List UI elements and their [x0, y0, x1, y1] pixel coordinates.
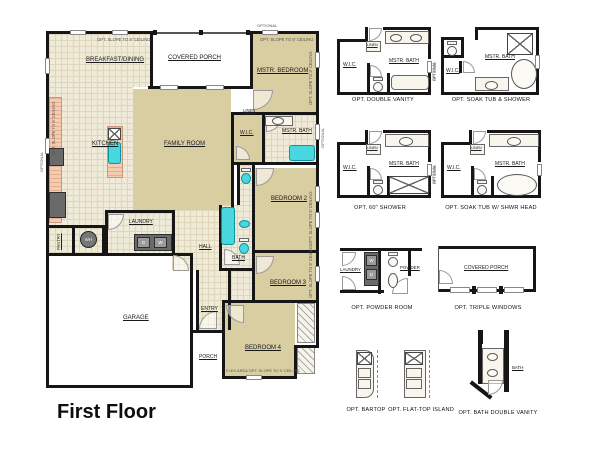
room-label-mstr-bath: MSTR. BATH [282, 129, 312, 134]
wall [237, 165, 240, 205]
wall [337, 92, 431, 95]
shower [507, 33, 533, 55]
room-label-wic: W.I.C. [447, 166, 461, 171]
window [262, 30, 278, 35]
option-caption: OPT. POWDER ROOM [351, 306, 412, 312]
option-powder-room: W D LAUNDRY POWDER [338, 240, 428, 302]
wall [46, 253, 193, 256]
window [504, 287, 524, 293]
wall [231, 165, 234, 208]
wall [46, 225, 105, 228]
door-swing [369, 131, 382, 144]
optional-note: OPTIONAL [433, 62, 437, 81]
wall [475, 27, 539, 30]
cabinet [405, 352, 423, 365]
room-label-laundry: LAUNDRY [129, 220, 153, 225]
door-swing [370, 65, 382, 77]
sink-basin [358, 379, 371, 389]
wall [441, 37, 463, 40]
wall [105, 210, 175, 213]
wall [294, 345, 319, 348]
toilet-tank [373, 77, 383, 81]
room-label-mstr-bedroom: MSTR. BEDROOM [257, 68, 308, 74]
wall [172, 210, 175, 253]
wall [231, 162, 319, 165]
option-flat-top-island [398, 348, 440, 404]
floor-plan-sheet: D W WH BREAKFAST/DINING COVERED PORCH MS… [0, 0, 600, 450]
dryer: D [137, 237, 150, 248]
room-label-mstr-bath: MSTR. BATH [389, 162, 419, 167]
room-label-wic: W.I.C. [240, 131, 254, 136]
room-label-pantry: PANTRY [57, 233, 61, 250]
porch-post [199, 30, 203, 35]
soak-tub [497, 174, 537, 196]
window [45, 58, 50, 74]
window [160, 85, 178, 90]
wall [72, 225, 75, 256]
option-caption: OPT. 60" SHOWER [354, 206, 406, 212]
option-bartop [348, 348, 384, 404]
window [246, 375, 262, 380]
wall [441, 142, 444, 198]
room-label-covered-porch: COVERED PORCH [168, 55, 221, 61]
porch-post [153, 30, 157, 35]
wall [222, 300, 319, 303]
option-soak-tub-shwr-head: LINEN W.I.C. MSTR. BATH OPTIONAL [437, 128, 545, 204]
toilet-bowl [373, 82, 383, 92]
wall [252, 165, 255, 253]
room-label-mstr-bath: MSTR. BATH [389, 59, 419, 64]
wall [441, 142, 469, 145]
wall [504, 330, 509, 392]
wall [383, 27, 431, 30]
window [537, 164, 542, 176]
option-caption: OPT. DOUBLE VANITY [352, 98, 414, 104]
door-swing [488, 380, 503, 395]
sink [487, 369, 498, 377]
toilet-tank [388, 252, 398, 256]
wall [337, 142, 365, 145]
wall [533, 246, 536, 292]
optional-note: OPTIONAL [257, 24, 277, 28]
wall [102, 225, 105, 256]
window [315, 212, 320, 228]
ceiling-note: OPT. SLOPE TO 9' CEILING [260, 38, 313, 42]
wall [46, 385, 193, 388]
wall [340, 290, 384, 293]
page-title: First Floor [57, 401, 156, 424]
wall [538, 176, 541, 198]
porch-post [472, 286, 476, 294]
wall [337, 39, 340, 95]
option-caption: OPT. SOAK TUB & SHOWER [452, 98, 531, 104]
wall [478, 330, 483, 344]
wall [250, 31, 319, 34]
option-caption: OPT. FLAT-TOP ISLAND [388, 408, 454, 414]
room-label-linen: LINEN [367, 147, 378, 151]
room-label-bedroom3: BEDROOM 3 [270, 280, 306, 286]
option-triple-windows: COVERED PORCH [432, 240, 544, 302]
room-label-wic: W.I.C. [343, 166, 357, 171]
sink-basin [358, 368, 371, 378]
ceiling-note: OPT. SLOPE TO 9' CEILING [309, 52, 313, 105]
room-label-wic: W.I.C. [446, 69, 460, 74]
door-swing [342, 252, 356, 266]
bathtub [289, 145, 315, 161]
sink [399, 137, 413, 146]
toilet-bowl [373, 185, 383, 195]
shower [389, 176, 429, 194]
soak-tub [511, 59, 537, 89]
door-swing [342, 276, 356, 290]
door-swing [474, 168, 486, 180]
wall [438, 246, 536, 249]
room-label-covered-porch: COVERED PORCH [464, 266, 508, 271]
option-caption: OPT. BATH DOUBLE VANITY [459, 411, 538, 417]
toilet-bowl [447, 46, 457, 56]
optional-note: OPTIONAL [40, 152, 44, 172]
wall [196, 270, 199, 332]
wall [231, 112, 234, 165]
window [450, 287, 470, 293]
wall [228, 270, 231, 330]
window [206, 85, 224, 90]
sink-basin [406, 379, 422, 389]
room-label-linen: LINEN [471, 147, 482, 151]
washer: W [154, 237, 167, 248]
toilet-bowl [241, 173, 251, 184]
optional-note: OPTIONAL [321, 128, 325, 148]
wall [487, 130, 541, 133]
room-label-porch: PORCH [199, 355, 217, 360]
toilet-tank [373, 180, 383, 184]
room-label-bedroom2: BEDROOM 2 [271, 196, 307, 202]
cabinet [357, 352, 372, 365]
window [112, 30, 128, 35]
room-label-wic: W.I.C. [343, 63, 357, 68]
toilet-tank [239, 238, 249, 242]
room-label-breakfast: BREAKFAST/DINING [86, 57, 144, 63]
door-swing [439, 270, 453, 284]
wall [190, 253, 193, 388]
room-label-entry: ENTRY [201, 307, 218, 312]
option-caption: OPT. TRIPLE WINDOWS [454, 306, 521, 312]
sink [272, 117, 284, 125]
wall [337, 195, 431, 198]
option-caption: OPT. SOAK TUB W/ SHWR HEAD [445, 206, 537, 212]
window [315, 186, 320, 202]
door-swing [369, 28, 382, 41]
closet-shelving [297, 303, 315, 343]
porch-post [499, 286, 503, 294]
porch-edge [438, 246, 439, 292]
toilet-bowl [477, 185, 487, 195]
wall [250, 34, 253, 89]
wall [387, 73, 390, 95]
flex-area-note: FLEX AREA OPT. SLOPE TO 9' CEILING [226, 369, 300, 373]
wall [222, 330, 225, 379]
toilet-tank [447, 41, 457, 45]
option-double-vanity: LINEN W.I.C. MSTR. BATH OPTIONAL [333, 25, 433, 99]
sink [410, 34, 422, 42]
wall [222, 303, 225, 330]
optional-note: OPTIONAL [433, 165, 437, 184]
toilet-bowl [388, 257, 398, 267]
toilet-tank [241, 168, 251, 172]
sink [239, 220, 250, 228]
wall [475, 27, 478, 40]
door-swing [463, 61, 475, 73]
sink-basin [406, 368, 422, 378]
room-label-linen: LINEN [367, 44, 378, 48]
wall [441, 37, 444, 95]
option-soak-tub-shower: W.I.C. MSTR. BATH OPTIONAL [437, 25, 545, 99]
option-bath-double-vanity: BATH [462, 330, 534, 406]
wall [337, 142, 340, 198]
door-swing [370, 168, 382, 180]
room-label-bath: BATH [232, 256, 245, 261]
window [315, 52, 320, 68]
ceiling-note: OPT. SLOPE TO 9' CEILING [52, 102, 56, 155]
wall [252, 253, 255, 303]
toilet-tank [477, 180, 487, 184]
sink [507, 137, 521, 146]
main-floor-plan: D W WH BREAKFAST/DINING COVERED PORCH MS… [0, 0, 330, 400]
room-label-garage: GARAGE [123, 315, 149, 321]
wall [219, 268, 255, 271]
room-label-laundry: LAUNDRY [340, 268, 361, 272]
wall [294, 348, 297, 379]
counter-overhang [429, 350, 432, 398]
ceiling-note: OPT. SLOPE TO 9' CEILING [97, 38, 150, 42]
room-label-bath: BATH [512, 366, 523, 370]
family-room-floor [133, 89, 231, 210]
room-label-mstr-bath: MSTR. BATH [485, 55, 515, 60]
room-label-kitchen: KITCHEN [92, 141, 118, 147]
room-label-linen: LINEN [243, 109, 255, 113]
window [535, 55, 540, 69]
bathtub [391, 75, 429, 90]
option-caption: OPT. BARTOP [347, 408, 386, 414]
option-60-shower: LINEN W.I.C. MSTR. BATH OPTIONAL [333, 128, 433, 204]
window [477, 287, 497, 293]
wall [491, 176, 494, 198]
room-label-mstr-bath: MSTR. BATH [495, 162, 525, 167]
wall [441, 92, 539, 95]
dryer: D [366, 269, 377, 280]
sink [485, 81, 498, 90]
window [70, 30, 86, 35]
island-cabinet [108, 128, 121, 140]
wall [337, 39, 365, 42]
counter-overhang [377, 350, 380, 398]
bathtub [221, 207, 235, 245]
window [315, 266, 320, 282]
wall [365, 27, 368, 42]
wall [383, 130, 431, 133]
ceiling-note: OPT. SLOPE TO 9' CEILING [309, 245, 313, 298]
wall [193, 330, 225, 333]
wall [469, 130, 472, 145]
door-swing [473, 131, 486, 144]
wall [365, 130, 368, 145]
room-label-family-room: FAMILY ROOM [164, 141, 205, 147]
refrigerator [49, 192, 66, 218]
ceiling-note: OPT. SLOPE TO 9' CEILING [309, 192, 313, 245]
room-label-powder: POWDER [400, 266, 420, 270]
sink [487, 353, 498, 361]
washer: W [366, 255, 377, 266]
pedestal-sink [388, 273, 398, 288]
wall [408, 248, 411, 276]
wall [46, 31, 153, 34]
sink [390, 34, 402, 42]
toilet-bowl [239, 243, 249, 254]
room-label-bedroom4: BEDROOM 4 [245, 345, 281, 351]
room-label-hall: HALL [199, 245, 212, 250]
water-heater: WH [80, 231, 97, 248]
